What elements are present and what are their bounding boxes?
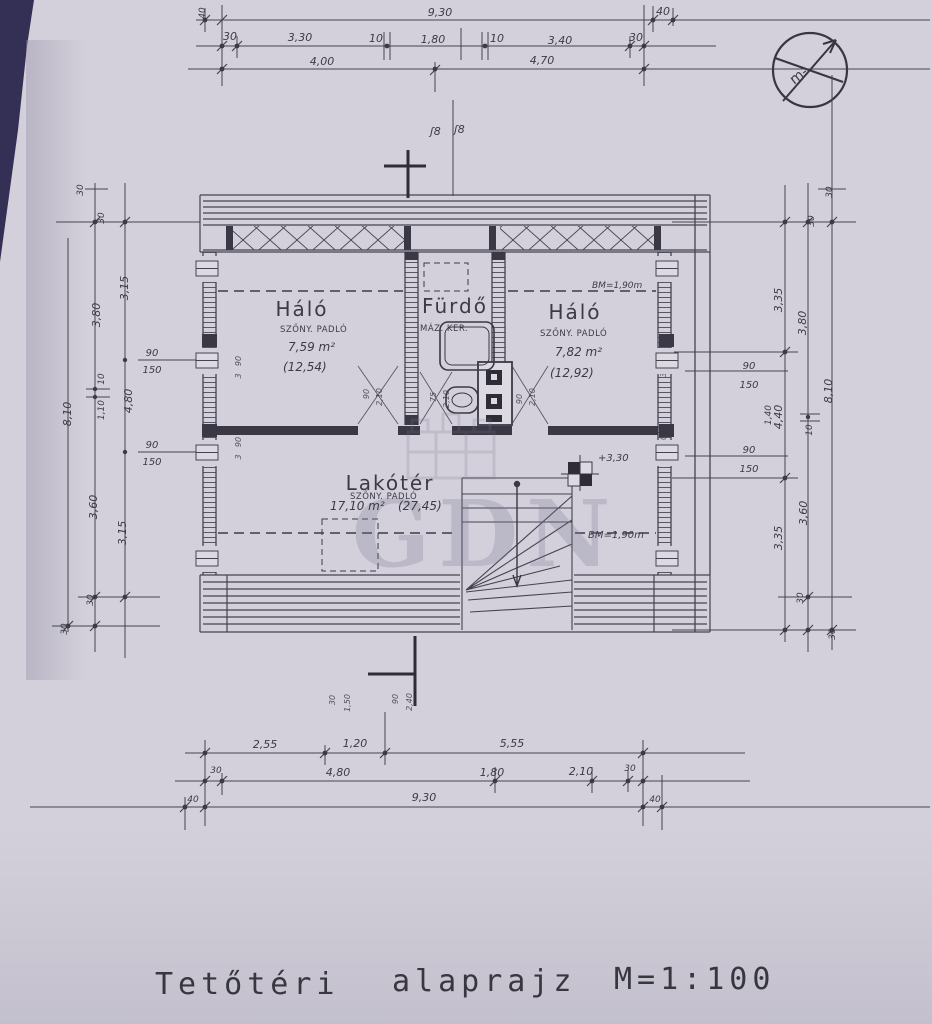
room-bedroom-right-gross: (12,92) [550,366,594,380]
dim-left-1: 30 [97,212,107,224]
dim-right-3: 3,80 [796,311,809,336]
dim-right-5: 10 [805,424,815,436]
title-scale: M=1:100 [614,962,775,997]
dim-top-r2-1: 3,30 [288,31,313,44]
chimney-block [478,362,512,425]
room-bedroom-right-name: Háló [548,300,601,324]
dim-left-wall-3: 3 [234,454,243,459]
dim-right-win2-w: 90 [743,445,756,456]
dim-right-win2-h: 150 [739,464,758,475]
dim-right-sill: 1,40 [764,405,774,425]
room-bedroom-right-area: 7,82 m² [555,345,602,359]
dim-right-1: 30 [807,215,817,227]
dim-right-9: 30 [828,628,838,640]
room-bedroom-left-area: 7,59 m² [288,340,335,354]
dim-left-3: 3,15 [118,276,131,301]
title-part1: Tetőtéri [155,967,340,1002]
flue-mark-right: ʃ8 [452,123,465,136]
title-part2: alaprajz [392,964,577,999]
dim-left-2: 3,80 [90,303,103,328]
dim-door3-w: 90 [515,394,524,404]
dim-top-total: 9,30 [428,6,453,19]
dim-left-win2-w: 90 [146,440,159,451]
dim-right-7: 3,35 [772,526,785,551]
dim-bot-mark-3: 2,40 [405,693,414,711]
dim-bot-mark-2: 90 [391,694,400,704]
dim-right-6: 3,60 [797,501,810,526]
room-bedroom-left-floor: SZŐNY. PADLÓ [280,323,347,335]
dim-bot-r3-0: 40 [187,795,199,805]
roof-lattice-left [232,226,404,250]
dim-left-4: 10 [97,373,107,385]
level-label: +3,30 [598,453,629,464]
dim-right-0: 30 [825,186,835,198]
dim-bot-r1-2: 5,55 [500,737,525,750]
dim-bot-r3-1: 9,30 [412,791,437,804]
dim-left-8: 3,15 [116,521,129,546]
dim-top-r3-0: 4,00 [310,55,335,68]
room-bathroom-name: Fürdő [422,294,488,318]
dim-left-0: 30 [76,184,86,196]
dim-left-win2-h: 150 [142,457,161,468]
floor-plan-photo: 40 9,30 40 30 3,30 10 1,80 10 3,40 30 4,… [0,0,932,1024]
dim-right-8: 30 [796,592,806,604]
dim-door2-w: 75 [429,392,438,402]
dim-left-6: 4,80 [122,389,135,414]
paper-crease-shadow [26,40,86,680]
dim-bot-r1-1: 1,20 [343,737,368,750]
dim-left-9: 30 [86,594,96,606]
dim-bot-mark-0: 30 [328,695,337,705]
dim-top-overhang-right: 40 [656,5,670,18]
dim-top-r2-2: 10 [369,32,383,45]
dim-door1-h: 2,10 [375,388,384,406]
dim-left-wall-1: 3 [234,373,243,378]
roof-lattice-right [500,226,654,250]
dim-bot-r2-2: 1,80 [480,766,505,779]
dim-right-win1-w: 90 [743,361,756,372]
dim-bot-r3-2: 40 [649,795,661,805]
dim-top-r2-0: 30 [223,30,237,43]
dim-left-5: 1,10 [97,400,107,420]
dim-door1-w: 90 [362,389,371,399]
left-wall-hatch [203,252,216,575]
room-bedroom-left-gross: (12,54) [283,360,327,374]
dim-bot-r2-3: 2,10 [569,765,594,778]
dim-left-win1-w: 90 [146,348,159,359]
dim-bot-r2-0: 30 [210,766,222,776]
plan-canvas: 40 9,30 40 30 3,30 10 1,80 10 3,40 30 4,… [0,0,932,1024]
room-bedroom-right-floor: SZŐNY. PADLÓ [540,327,607,339]
wall-bath-left-hatch [405,252,418,425]
dim-top-r3-1: 4,70 [530,54,555,67]
dim-left-10: 30 [60,623,70,635]
dim-left-win1-h: 150 [142,365,161,376]
dim-bot-mark-1: 1,50 [343,694,352,712]
dim-right-2: 3,35 [772,288,785,313]
flue-mark-left: ʃ8 [428,125,441,138]
dim-bot-r2-4: 30 [624,764,636,774]
dim-left-7: 3,60 [87,495,100,520]
room-living-area: 17,10 m² [330,499,385,513]
dim-left-total: 8,10 [61,402,74,427]
room-bathroom-floor: MÁZ. KER. [420,322,468,334]
room-bedroom-left-name: Háló [275,297,328,321]
dim-top-r2-5: 3,40 [548,34,573,47]
dim-top-overhang-left: 40 [198,7,208,19]
dim-left-wall-2: 90 [234,437,243,447]
room-living-gross: (27,45) [398,499,442,513]
knee-height-upper: BM=1,90m [592,281,643,291]
dim-right-total: 8,10 [822,379,835,404]
dim-top-r2-4: 10 [490,32,504,45]
dim-bot-r1-0: 2,55 [253,738,278,751]
dim-left-wall-0: 90 [234,356,243,366]
dim-bot-r2-1: 4,80 [326,766,351,779]
dim-door3-h: 2,10 [528,388,537,406]
dim-right-win1-h: 150 [739,380,758,391]
right-wall-hatch [658,252,671,575]
dim-top-r2-6: 30 [629,31,643,44]
dim-top-r2-3: 1,80 [421,33,446,46]
